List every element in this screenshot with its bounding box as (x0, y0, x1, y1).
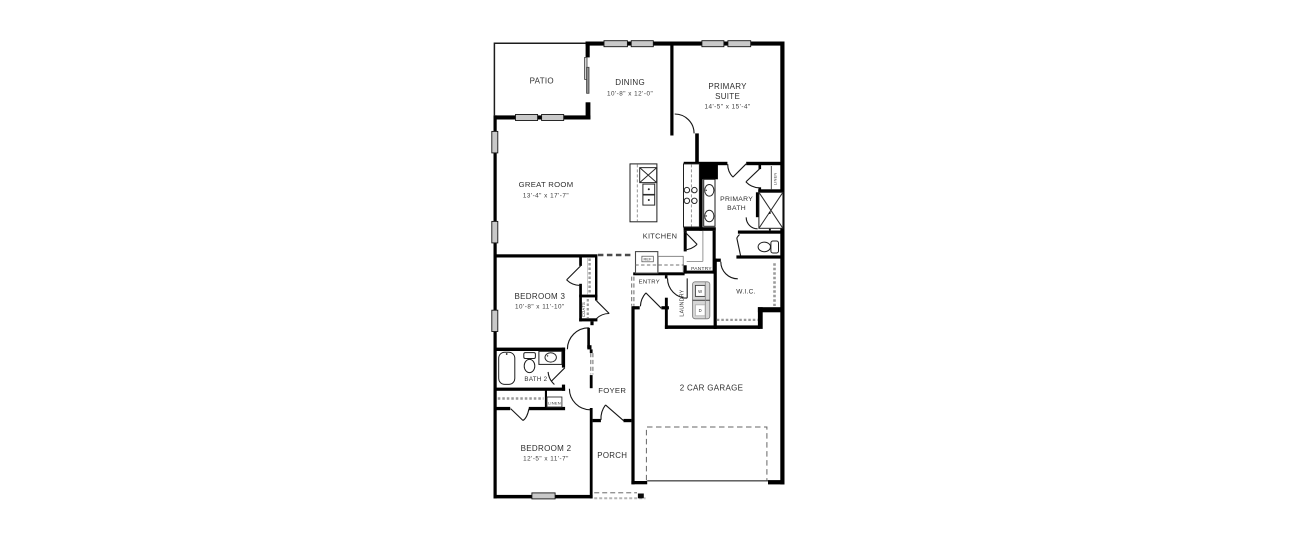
svg-text:PATIO: PATIO (530, 76, 554, 85)
svg-text:BEDROOM 3: BEDROOM 3 (515, 292, 566, 301)
svg-text:BATH 2: BATH 2 (524, 376, 547, 383)
svg-text:PRIMARY: PRIMARY (720, 196, 753, 203)
svg-text:LINEN: LINEN (773, 173, 778, 186)
svg-text:14'-5" x 15'-4": 14'-5" x 15'-4" (704, 104, 750, 111)
svg-text:LINEN: LINEN (548, 401, 561, 406)
svg-text:PANTRY: PANTRY (691, 266, 712, 272)
svg-text:GREAT ROOM: GREAT ROOM (519, 180, 574, 189)
svg-text:PORCH: PORCH (597, 451, 627, 460)
svg-text:COATS: COATS (581, 302, 586, 317)
svg-text:12'-5" x 11'-7": 12'-5" x 11'-7" (523, 455, 569, 462)
svg-text:10'-8" x 12'-0": 10'-8" x 12'-0" (607, 90, 653, 97)
svg-text:D: D (699, 308, 702, 313)
svg-text:BEDROOM 2: BEDROOM 2 (521, 444, 572, 453)
svg-text:BATH: BATH (727, 205, 746, 212)
svg-text:DINING: DINING (615, 78, 645, 87)
svg-text:10'-8" x 11'-10": 10'-8" x 11'-10" (515, 304, 565, 311)
svg-text:REF: REF (643, 258, 652, 262)
svg-text:PRIMARY: PRIMARY (708, 82, 747, 91)
svg-text:FOYER: FOYER (598, 386, 626, 395)
svg-text:LAUNDRY: LAUNDRY (679, 289, 685, 316)
svg-text:W: W (698, 289, 702, 294)
svg-text:W.I.C.: W.I.C. (736, 289, 756, 296)
svg-text:2 CAR GARAGE: 2 CAR GARAGE (680, 384, 744, 393)
svg-text:SUITE: SUITE (715, 92, 740, 101)
svg-text:13'-4" x 17'-7": 13'-4" x 17'-7" (523, 193, 569, 200)
svg-text:KITCHEN: KITCHEN (643, 232, 678, 241)
svg-text:ENTRY: ENTRY (639, 279, 660, 285)
